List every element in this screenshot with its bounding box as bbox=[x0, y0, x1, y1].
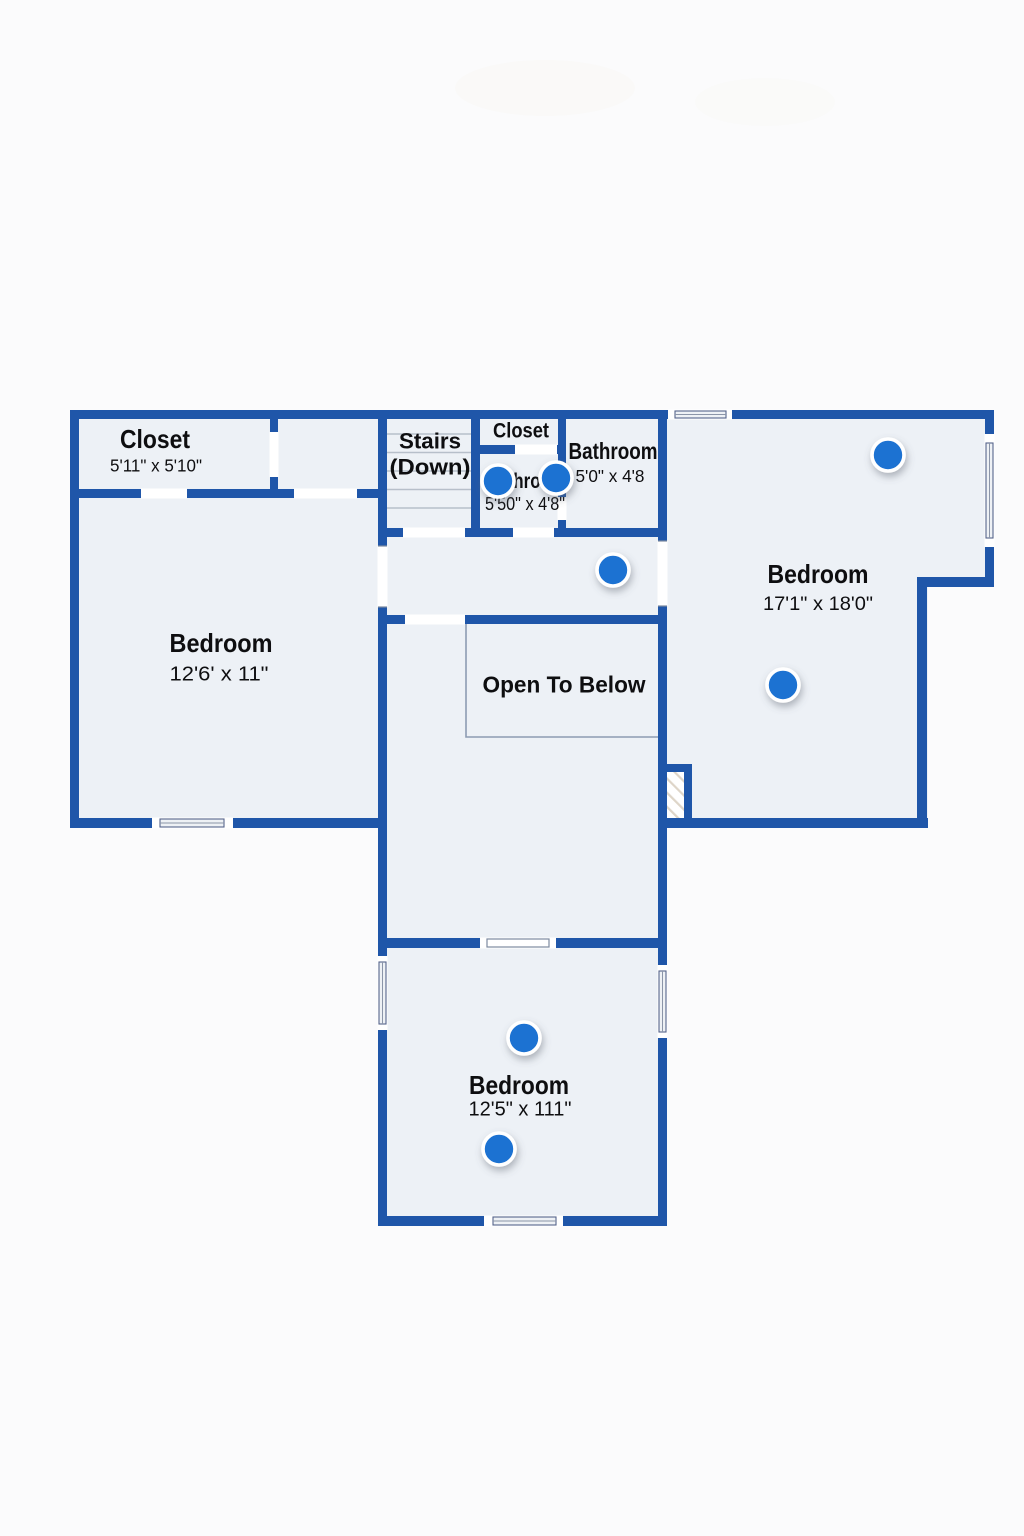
svg-text:Bathroom: Bathroom bbox=[569, 438, 658, 464]
svg-text:Bedroom: Bedroom bbox=[170, 628, 273, 658]
svg-text:12'6' x 11": 12'6' x 11" bbox=[170, 664, 269, 686]
svg-text:Bedroom: Bedroom bbox=[469, 1070, 569, 1100]
svg-text:5'11" x 5'10": 5'11" x 5'10" bbox=[110, 456, 202, 476]
svg-text:Closet: Closet bbox=[120, 424, 190, 454]
svg-text:5'0" x 4'8: 5'0" x 4'8 bbox=[576, 466, 645, 486]
svg-text:Stairs: Stairs bbox=[399, 429, 461, 454]
svg-text:12'5" x 111": 12'5" x 111" bbox=[469, 1099, 572, 1121]
svg-text:(Down): (Down) bbox=[390, 455, 471, 480]
svg-text:Bedroom: Bedroom bbox=[768, 559, 869, 589]
svg-text:Closet: Closet bbox=[493, 419, 549, 443]
svg-text:Open To Below: Open To Below bbox=[483, 672, 646, 698]
svg-text:17'1" x 18'0": 17'1" x 18'0" bbox=[763, 593, 873, 615]
